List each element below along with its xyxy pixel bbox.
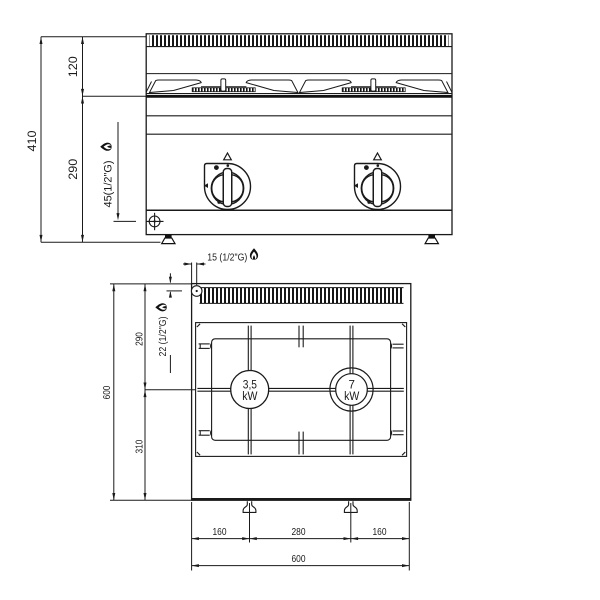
svg-text:160: 160 [213, 527, 227, 538]
svg-text:22 (1/2"G): 22 (1/2"G) [157, 317, 169, 357]
svg-text:600: 600 [102, 385, 113, 399]
svg-text:310: 310 [135, 439, 146, 453]
svg-text:410: 410 [25, 130, 39, 151]
svg-text:3,5: 3,5 [243, 379, 257, 391]
svg-text:600: 600 [292, 554, 306, 565]
svg-text:15 (1/2"G): 15 (1/2"G) [207, 251, 247, 263]
svg-text:280: 280 [292, 527, 306, 538]
svg-text:45(1/2"G): 45(1/2"G) [103, 161, 115, 208]
svg-text:120: 120 [66, 56, 80, 77]
svg-text:kW: kW [344, 391, 359, 403]
svg-text:7: 7 [348, 379, 354, 391]
svg-text:290: 290 [66, 158, 80, 179]
svg-text:160: 160 [373, 527, 387, 538]
svg-text:290: 290 [135, 332, 146, 346]
svg-text:kW: kW [242, 391, 257, 403]
